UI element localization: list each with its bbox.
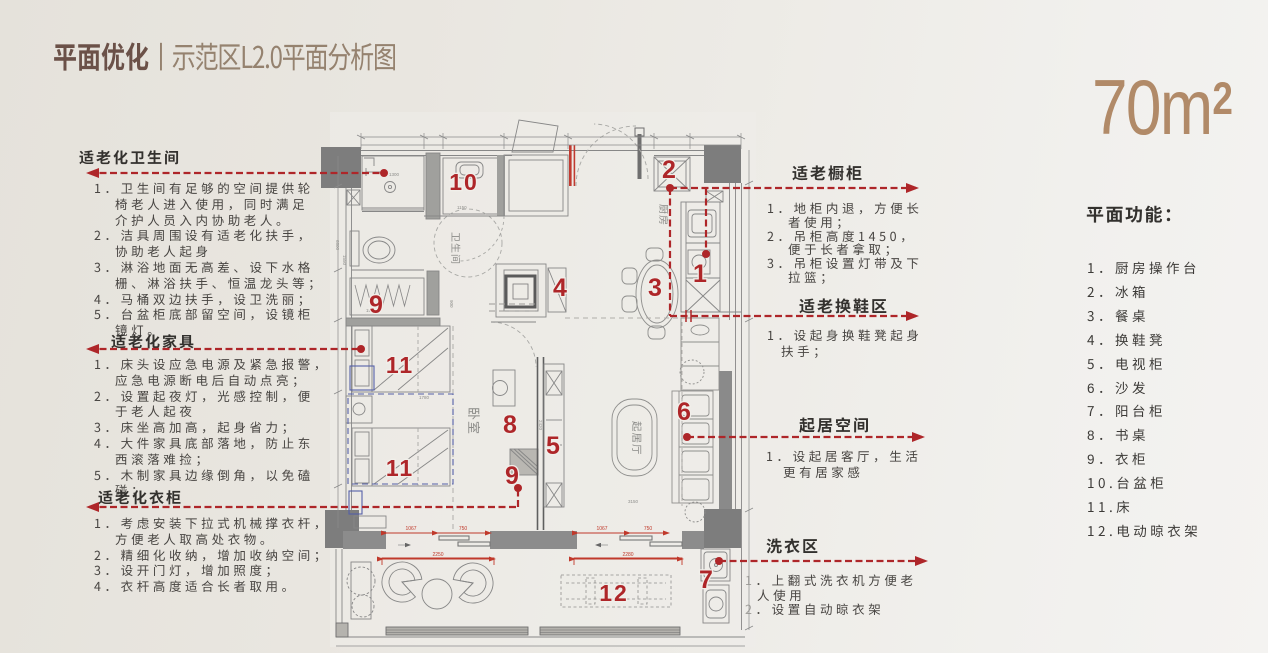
svg-text:6800: 6800 [335,240,340,251]
svg-text:卫生间: 卫生间 [449,232,464,265]
svg-text:1067: 1067 [596,526,607,532]
svg-text:750: 750 [459,526,468,532]
svg-text:750: 750 [644,526,653,532]
svg-text:10: 10 [449,169,479,195]
svg-text:6: 6 [677,398,691,426]
svg-text:12: 12 [599,580,629,606]
svg-text:起居厅: 起居厅 [629,421,644,456]
svg-text:1: 1 [693,260,707,288]
svg-text:1067: 1067 [405,526,416,532]
svg-text:2250: 2250 [432,552,443,558]
svg-text:3: 3 [648,274,662,302]
svg-text:9: 9 [505,462,519,490]
svg-text:4: 4 [553,274,567,302]
svg-text:9: 9 [369,291,383,319]
svg-text:1150: 1150 [457,205,467,210]
svg-text:1780: 1780 [419,395,430,400]
svg-text:11: 11 [386,352,414,378]
svg-text:8: 8 [503,411,517,439]
svg-text:900: 900 [449,300,454,308]
svg-text:11: 11 [386,455,414,481]
svg-text:5: 5 [546,432,560,460]
svg-text:3150: 3150 [628,499,639,504]
svg-text:1300: 1300 [389,172,400,177]
svg-text:2420: 2420 [538,420,543,431]
svg-text:卧室: 卧室 [465,407,484,435]
svg-text:2: 2 [662,156,676,184]
svg-text:2280: 2280 [622,552,633,558]
svg-text:1550: 1550 [342,255,347,266]
svg-text:7: 7 [699,566,713,594]
